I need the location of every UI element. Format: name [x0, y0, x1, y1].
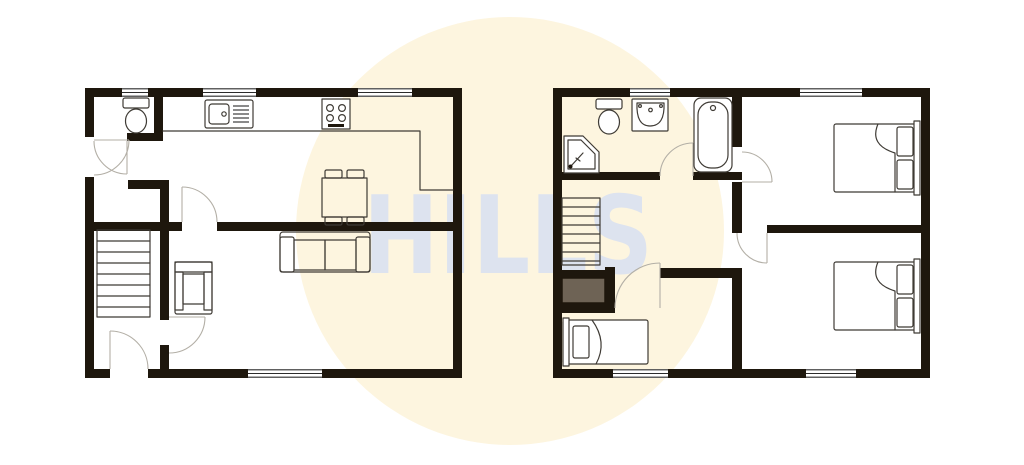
window: [248, 369, 322, 378]
floorplan-page: HILLS: [0, 0, 1024, 465]
double-bed-icon: [834, 259, 920, 333]
hob-icon: [322, 99, 350, 129]
toilet-icon: [596, 99, 622, 134]
staircase-icon: [97, 230, 150, 317]
window: [806, 369, 856, 378]
storage-cupboard: [562, 278, 605, 303]
toilet-icon: [123, 98, 149, 133]
window: [358, 88, 412, 97]
door-swing: [94, 140, 217, 369]
floorplan-canvas: HILLS: [0, 0, 1024, 465]
window: [203, 88, 256, 97]
double-bed-icon: [834, 121, 920, 195]
window: [122, 88, 148, 97]
single-bed-icon: [563, 318, 648, 366]
front-door-opening: [85, 137, 94, 177]
window: [613, 369, 668, 378]
armchair-icon: [175, 262, 212, 314]
back-door-opening: [110, 369, 148, 378]
kitchen-sink-icon: [205, 100, 253, 128]
window: [800, 88, 862, 97]
wash-basin-icon: [632, 99, 668, 131]
window: [630, 88, 670, 97]
bath-icon: [694, 98, 732, 172]
